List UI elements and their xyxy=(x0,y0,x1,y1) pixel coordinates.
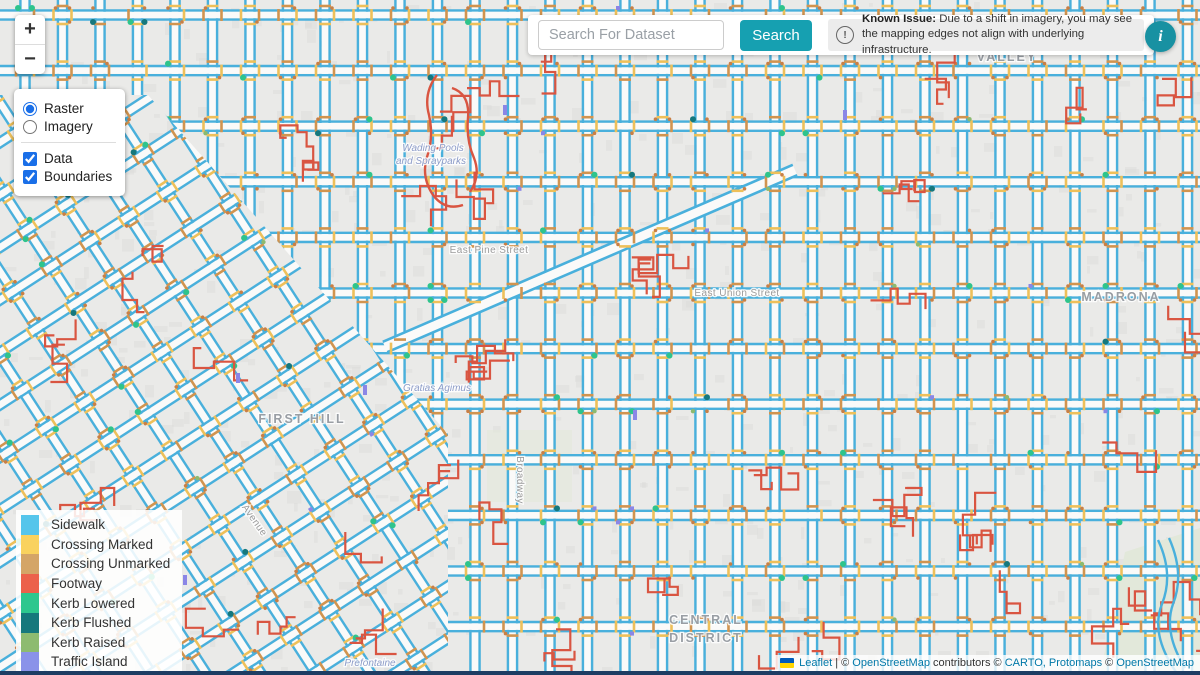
map-label: DISTRICT xyxy=(669,631,743,645)
map-label: and Sprayparks xyxy=(396,156,466,167)
map-label: Wading Pools xyxy=(402,143,464,154)
known-issue-notice: ! Known Issue: Due to a shift in imagery… xyxy=(828,19,1144,51)
legend-swatch xyxy=(21,574,39,594)
attribution-text: | © xyxy=(832,657,852,669)
checkbox-input[interactable] xyxy=(23,152,37,166)
base-layer-option-imagery[interactable]: Imagery xyxy=(23,119,112,134)
legend-label: Crossing Marked xyxy=(39,537,153,552)
legend-label: Kerb Flushed xyxy=(39,615,131,630)
layer-label: Data xyxy=(44,151,73,166)
legend-label: Kerb Lowered xyxy=(39,596,135,611)
legend-swatch xyxy=(21,593,39,613)
search-bar: Search ! Known Issue: Due to a shift in … xyxy=(528,15,1154,55)
layer-label: Boundaries xyxy=(44,169,112,184)
legend-item: Sidewalk xyxy=(21,515,170,535)
legend-swatch xyxy=(21,515,39,535)
layer-label: Imagery xyxy=(44,119,93,134)
map-application: VALLEYMADRONAFIRST HILLCENTRALDISTRICTEa… xyxy=(0,0,1200,675)
attribution-link[interactable]: CARTO, xyxy=(1005,657,1046,669)
divider xyxy=(21,142,116,143)
attribution-text: contributors © xyxy=(930,657,1005,669)
attribution-link[interactable]: Protomaps xyxy=(1049,657,1102,669)
legend-swatch xyxy=(21,652,39,672)
layer-control: RasterImagery DataBoundaries xyxy=(14,89,125,196)
map-label: FIRST HILL xyxy=(258,412,345,426)
search-input[interactable] xyxy=(538,20,724,50)
ukraine-flag-icon xyxy=(780,658,794,668)
legend-swatch xyxy=(21,633,39,653)
radio-input[interactable] xyxy=(23,102,37,116)
alert-circle-icon: ! xyxy=(836,26,854,44)
legend-item: Crossing Unmarked xyxy=(21,554,170,574)
checkbox-input[interactable] xyxy=(23,170,37,184)
map-label: MADRONA xyxy=(1081,290,1160,304)
zoom-in-button[interactable]: + xyxy=(15,15,45,44)
radio-input[interactable] xyxy=(23,120,37,134)
legend-item: Kerb Flushed xyxy=(21,613,170,633)
legend-swatch xyxy=(21,613,39,633)
legend-item: Traffic Island xyxy=(21,652,170,672)
map-label: Broadway xyxy=(514,456,525,504)
legend-label: Kerb Raised xyxy=(39,635,125,650)
info-button[interactable]: i xyxy=(1145,21,1176,52)
map-label: CENTRAL xyxy=(669,613,743,627)
overlay-option-boundaries[interactable]: Boundaries xyxy=(23,169,112,184)
zoom-control: + − xyxy=(15,15,45,74)
legend-label: Crossing Unmarked xyxy=(39,556,170,571)
base-layer-option-raster[interactable]: Raster xyxy=(23,101,112,116)
map-label: East Union Street xyxy=(694,288,779,299)
legend-item: Footway xyxy=(21,574,170,594)
legend-swatch xyxy=(21,535,39,555)
legend-label: Sidewalk xyxy=(39,517,105,532)
footer-bar xyxy=(0,671,1200,675)
known-issue-text: Known Issue: Due to a shift in imagery, … xyxy=(862,12,1134,57)
layer-label: Raster xyxy=(44,101,84,116)
known-issue-title: Known Issue: xyxy=(862,13,936,25)
attribution-text: © xyxy=(1102,657,1116,669)
legend-item: Kerb Raised xyxy=(21,633,170,653)
zoom-out-button[interactable]: − xyxy=(15,45,45,74)
overlay-option-data[interactable]: Data xyxy=(23,151,112,166)
legend-item: Kerb Lowered xyxy=(21,593,170,613)
legend-swatch xyxy=(21,554,39,574)
overlay-layer-options: DataBoundaries xyxy=(23,151,112,184)
attribution: Leaflet | © OpenStreetMap contributors ©… xyxy=(775,655,1200,671)
search-button[interactable]: Search xyxy=(740,20,812,51)
map-label: Gratias Agimus xyxy=(403,383,471,394)
attribution-link[interactable]: OpenStreetMap xyxy=(1116,657,1194,669)
base-layer-options: RasterImagery xyxy=(23,101,112,134)
legend-label: Traffic Island xyxy=(39,654,128,669)
legend-item: Crossing Marked xyxy=(21,535,170,555)
legend: SidewalkCrossing MarkedCrossing Unmarked… xyxy=(16,510,182,675)
map-label: East Pine Street xyxy=(450,245,529,256)
attribution-link[interactable]: OpenStreetMap xyxy=(852,657,930,669)
attribution-link[interactable]: Leaflet xyxy=(799,657,832,669)
map-label: Prefontaine xyxy=(344,658,396,669)
legend-label: Footway xyxy=(39,576,102,591)
